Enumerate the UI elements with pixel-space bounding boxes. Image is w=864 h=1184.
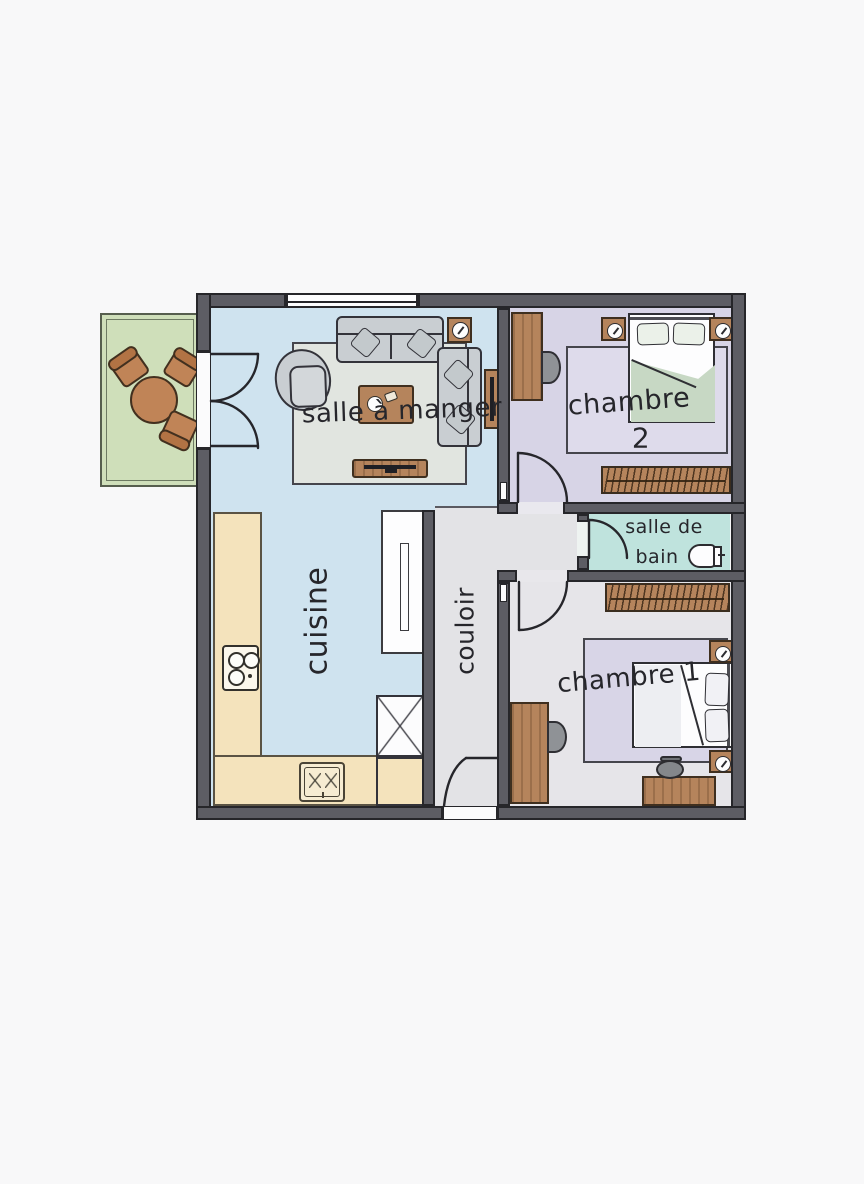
room-label-bathroom-line2: bain [635, 546, 678, 568]
wall-bottom-left [196, 806, 443, 820]
toilet-tank [713, 546, 722, 567]
bedroom2-door-threshold [518, 502, 563, 514]
clock-icon [715, 756, 731, 772]
door-jamb [500, 482, 507, 500]
wall-bathroom-stub-bottom [577, 556, 589, 570]
sofa [336, 316, 444, 363]
balcony-door-threshold [196, 352, 211, 448]
bedroom2-nightstand [601, 317, 626, 341]
bedroom1-wardrobe [605, 583, 730, 612]
appliance-box [376, 757, 424, 806]
room-label-bedroom2-number: 2 [632, 422, 650, 455]
toilet [688, 544, 716, 568]
tv-console [352, 459, 428, 478]
room-label-kitchen: cuisine [300, 567, 335, 676]
wall-bedroom2-bottom-east [563, 502, 746, 514]
kitchen-sink [299, 762, 345, 802]
door-jamb [500, 584, 507, 602]
cooktop [222, 645, 259, 691]
clock-icon [452, 322, 469, 339]
wall-hallway-bedroom1 [497, 582, 510, 806]
bedroom1-small-desk [642, 776, 716, 806]
side-table [447, 317, 472, 343]
wall-bottom-right [497, 806, 746, 820]
window [286, 293, 418, 308]
clock-icon [715, 646, 731, 662]
hallway-floor-extension [497, 514, 577, 570]
bedroom2-desk [511, 312, 543, 401]
wall-kitchen-hallway [422, 510, 435, 806]
wall-bathroom-stub-top [577, 514, 589, 522]
entrance-door-threshold [443, 806, 497, 820]
appliance-box [376, 695, 424, 757]
kitchen-island [381, 510, 424, 654]
wall-left-upper [196, 293, 211, 352]
toilet-handle [718, 554, 725, 556]
wall-bedroom2-bottom-west [497, 502, 518, 514]
wall-bedroom1-top-west [497, 570, 517, 582]
wall-top-right [418, 293, 746, 308]
bedroom1-door-threshold [517, 570, 567, 582]
bedroom1-stool [656, 760, 684, 779]
bedroom2-nightstand [709, 317, 733, 341]
bedroom1-nightstand [709, 750, 733, 773]
open-plan-boundary [435, 506, 497, 508]
wall-right [731, 293, 746, 820]
wall-bedroom1-top-east [567, 570, 746, 582]
bedroom2-wardrobe [601, 466, 731, 494]
bedroom1-desk [510, 702, 549, 804]
floor-plan: salle à manger chambre 2 salle de bain c… [0, 0, 864, 1184]
room-label-hallway: couloir [451, 587, 480, 675]
wall-left-lower [196, 448, 211, 820]
clock-icon [607, 323, 623, 339]
bathroom-door-threshold [577, 522, 589, 556]
room-label-bathroom-line1: salle de [625, 516, 703, 538]
clock-icon [715, 323, 731, 339]
bedroom1-nightstand [709, 640, 733, 663]
